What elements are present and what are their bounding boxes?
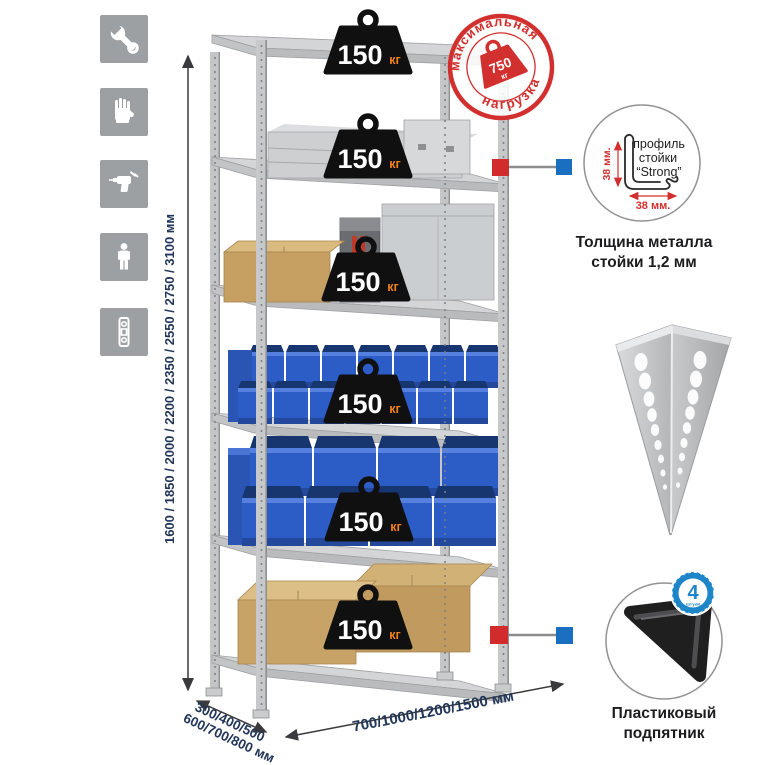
connector-red-top	[492, 159, 509, 176]
profile-caption-line2: стойки 1,2 мм	[570, 253, 718, 273]
load-value: 150	[337, 615, 382, 645]
load-unit: кг	[389, 53, 400, 67]
load-value: 150	[337, 144, 382, 174]
load-value: 150	[335, 267, 380, 297]
load-value: 150	[338, 507, 383, 537]
profile-caption: Толщина металла стойки 1,2 мм	[570, 233, 718, 273]
load-unit: кг	[389, 402, 400, 416]
profile-label-line3: “Strong”	[636, 165, 681, 179]
load-value: 150	[337, 389, 382, 419]
profile-caption-line1: Толщина металла	[570, 233, 718, 253]
load-unit: кг	[387, 280, 398, 294]
max-load-stamp: максимальная нагрузка 750 кг	[434, 0, 568, 133]
product-infographic-shelving-rack: 150 кг 150 кг 150 кг 150 кг 150 кг 150 к…	[0, 0, 765, 765]
width-dimension-label: 700/1000/1200/1500 мм	[351, 688, 515, 736]
angle-post-image	[616, 325, 731, 535]
profile-label-line2: стойки	[639, 151, 677, 165]
load-unit: кг	[390, 520, 401, 534]
load-unit: кг	[389, 157, 400, 171]
rack-scene: 150 кг 150 кг 150 кг 150 кг 150 кг 150 к…	[0, 0, 765, 765]
foot-caption: Пластиковый подпятник	[590, 704, 738, 744]
load-value: 150	[337, 40, 382, 70]
foot-caption-line1: Пластиковый	[590, 704, 738, 724]
profile-dim-horizontal: 38 мм.	[636, 200, 671, 212]
post-profile-detail: 38 мм. 38 мм. профиль стойки “Strong”	[584, 105, 700, 221]
profile-label-line1: профиль	[633, 137, 685, 151]
connector-red-bottom	[490, 626, 508, 644]
foot-caption-line2: подпятник	[590, 724, 738, 744]
height-dimension-label: 1600 / 1850 / 2000 / 2200 / 2350 / 2550 …	[162, 214, 177, 544]
connector-blue-bottom	[556, 627, 573, 644]
connector-blue-top	[556, 159, 572, 175]
load-unit: кг	[389, 628, 400, 642]
profile-dim-vertical: 38 мм.	[601, 147, 613, 180]
